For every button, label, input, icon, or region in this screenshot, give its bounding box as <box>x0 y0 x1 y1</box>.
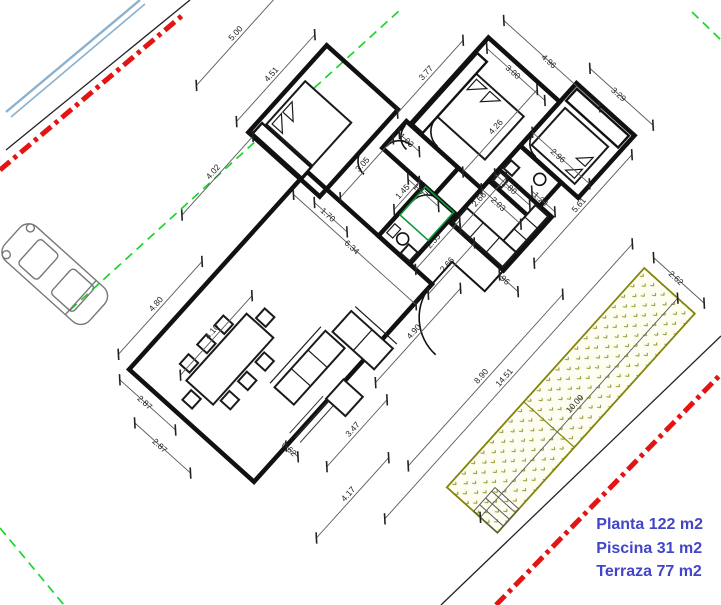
road-edge-blue-line-2 <box>11 4 145 117</box>
dimension-label: 2.55 <box>424 231 443 250</box>
dimension-label: 2.66 <box>438 255 457 274</box>
porch-arc <box>399 284 470 355</box>
dimension-label: 4.17 <box>339 484 358 503</box>
legend-terraza: Terraza 77 m2 <box>596 560 703 583</box>
site-plan-canvas: { "title": "villa-floor-plan", "legend":… <box>0 0 721 605</box>
sofa-set <box>270 299 404 436</box>
dimension-label: 4.02 <box>204 162 223 181</box>
thin-boundary-line-top <box>6 0 190 150</box>
green-dashed-line-3 <box>692 12 721 40</box>
dimension-label: 3.77 <box>417 63 436 82</box>
corridor-walls <box>434 168 481 215</box>
dimension-label: 5.61 <box>569 195 588 214</box>
dimension-label: 3.47 <box>343 419 362 438</box>
coffee-table <box>326 379 363 416</box>
dimension-label: 8.90 <box>472 366 491 385</box>
dimension-label: 4.80 <box>147 294 166 313</box>
legend-piscina: Piscina 31 m2 <box>596 537 703 560</box>
toilet-2 <box>531 171 548 188</box>
boundary-red-dashed-top <box>0 14 184 170</box>
green-dashed-line-2 <box>0 528 64 605</box>
dimension-label: 5.00 <box>226 23 245 42</box>
car <box>0 219 112 329</box>
dimension-label: 4.51 <box>262 64 281 83</box>
legend-planta: Planta 122 m2 <box>596 513 703 536</box>
legend: Planta 122 m2 Piscina 31 m2 Terraza 77 m… <box>596 513 703 583</box>
living-dining-room <box>129 172 432 482</box>
